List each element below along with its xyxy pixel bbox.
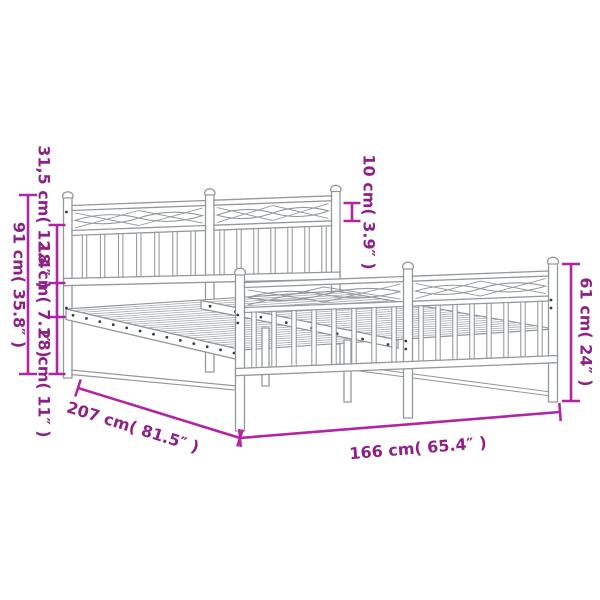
label-base-height: 28 cm( 11″ ) xyxy=(34,328,53,437)
label-length: 207 cm( 81.5″ ) xyxy=(64,398,201,457)
diagram-canvas: 91 cm( 35.8″ ) 31,5 cm( 12.4″ ) 18 cm( 7… xyxy=(0,0,600,600)
label-headboard-band: 10 cm( 3.9″ ) xyxy=(359,154,378,269)
label-footboard-height: 61 cm( 24″ ) xyxy=(576,277,595,386)
bed-frame-illustration xyxy=(63,185,559,431)
product-dimension-diagram: 91 cm( 35.8″ ) 31,5 cm( 12.4″ ) 18 cm( 7… xyxy=(0,0,600,600)
label-total-height: 91 cm( 35.8″ ) xyxy=(9,222,28,348)
dimension-headboard-band xyxy=(344,203,361,221)
label-width: 166 cm( 65.4″ ) xyxy=(349,433,488,463)
